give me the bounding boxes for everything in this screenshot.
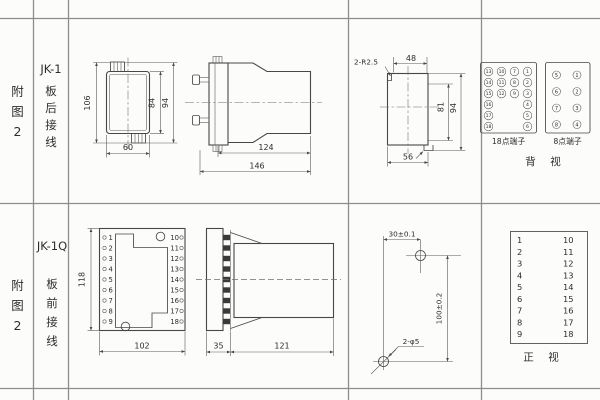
terminal-number: 7 [513, 69, 516, 75]
terminal-screw-head [193, 116, 200, 126]
back-view-caption: 背 视 [525, 155, 563, 168]
terminal-number: 6 [526, 124, 529, 130]
table-cell: 3 [517, 259, 522, 269]
dim-118: 118 [78, 229, 100, 331]
terminal-block-label: 8点端子 [553, 136, 582, 146]
table-cell: 7 [517, 306, 522, 316]
terminal-dot [103, 236, 106, 239]
table-cell: 17 [563, 317, 574, 327]
leader-line [389, 347, 399, 357]
table-grid [0, 0, 600, 400]
terminal-dot [180, 320, 183, 323]
dim-text: 146 [249, 162, 264, 171]
dim-text: 60 [123, 143, 133, 152]
dim-text: 94 [449, 103, 458, 113]
terminal-number: 15 [170, 286, 179, 294]
dim-text: 48 [406, 54, 416, 63]
terminal-number: 17 [486, 113, 492, 119]
jk1-front-view: 106 84 94 60 [83, 58, 178, 158]
dim-text: 35 [213, 342, 223, 351]
terminal-number: 2 [575, 89, 578, 95]
terminal-stud [223, 287, 230, 292]
terminal-stud [223, 266, 230, 271]
terminal-number: 15 [486, 91, 492, 97]
table-cell: 8 [517, 317, 522, 327]
model-label-jk1q: JK-1Q [36, 239, 67, 253]
terminal-number: 1 [526, 69, 529, 75]
table-cell: 10 [563, 235, 574, 245]
terminal-number: 2 [526, 80, 529, 86]
terminal-dot [180, 288, 183, 291]
dim-94-cutout: 94 [429, 74, 466, 151]
terminal-number: 8 [555, 122, 558, 128]
table-cell: 4 [517, 270, 522, 280]
radius-callout: 2-R2.5 [354, 58, 390, 77]
terminal-number: 14 [486, 80, 492, 86]
table-cell: 12 [563, 259, 574, 269]
figure-label-char: 2 [14, 318, 22, 333]
front-view-caption: 正 视 [523, 351, 561, 364]
relay-footprint-outline [116, 234, 168, 328]
terminal-number: 10 [499, 69, 505, 75]
table-cell: 18 [563, 329, 574, 339]
dim-30: 30±0.1 [384, 230, 421, 240]
terminal-stud [223, 308, 230, 313]
dim-text: 2-φ5 [403, 337, 420, 346]
terminal-stud [223, 235, 230, 240]
table-cell: 14 [563, 282, 574, 292]
mounting-hole [121, 322, 130, 331]
terminal-block-outline [546, 63, 591, 134]
terminal-number: 4 [526, 102, 529, 108]
terminal-screw-shaft [200, 78, 210, 83]
figure-label-char: 图 [11, 298, 24, 313]
table-cell: 16 [563, 306, 574, 316]
dim-124: 124 [218, 136, 311, 157]
row2-headers: 附 图 2 JK-1Q 板 前 接 线 [11, 239, 67, 348]
terminal-number: 9 [109, 318, 113, 326]
terminal-number: 5 [109, 276, 113, 284]
terminal-stud [223, 256, 230, 261]
bottom-tab [424, 145, 433, 151]
wiring-label-char: 接 [46, 315, 58, 329]
flange-stub-top [213, 57, 222, 64]
dim-text: 100±0.2 [435, 293, 444, 325]
tab-arrow [416, 152, 423, 159]
hole-callout: 2-φ5 [389, 337, 425, 357]
dim-text: 56 [403, 153, 413, 162]
terminal-stud [223, 298, 230, 303]
terminal-block-18: 13 10 7 1 14 11 8 2 15 12 9 3 16 4 17 5 … [481, 63, 537, 147]
table-cell: 9 [517, 329, 522, 339]
terminal-dot [103, 309, 106, 312]
terminal-number: 16 [486, 102, 492, 108]
jk1-side-view: 124 146 [185, 57, 322, 176]
taper-line [231, 318, 263, 329]
terminal-dot [103, 320, 106, 323]
jk1q-plate-view: 1 2 3 4 5 6 7 8 9 10 11 12 13 14 15 16 1… [78, 229, 186, 356]
terminal-number: 2 [109, 244, 113, 252]
drilling-plan: 30±0.1 100±0.2 2-φ5 [371, 230, 461, 375]
terminal-number: 1 [575, 73, 578, 79]
terminal-number: 10 [170, 234, 179, 242]
terminal-number: 5 [526, 113, 529, 119]
terminal-number: 8 [109, 307, 113, 315]
wiring-label-char: 板 [45, 84, 57, 98]
table-cell: 6 [517, 294, 522, 304]
dim-text: 94 [161, 98, 170, 108]
figure-label-char: 附 [11, 84, 24, 99]
terminal-number: 4 [109, 265, 113, 273]
terminal-number: 11 [499, 80, 505, 86]
dim-text: 124 [258, 143, 273, 152]
dim-text: 121 [274, 342, 289, 351]
dim-48: 48 [394, 54, 428, 73]
terminal-dot [103, 299, 106, 302]
terminal-screw-shaft [200, 118, 210, 123]
terminal-dot [180, 257, 183, 260]
terminal-number: 9 [513, 91, 516, 97]
terminal-number: 12 [170, 255, 179, 263]
dim-text: 118 [78, 272, 87, 287]
figure-label-char: 2 [14, 124, 22, 139]
table-cell: 2 [517, 247, 522, 257]
jk1-panel-cutout: 2-R2.5 48 81 94 56 [354, 54, 465, 167]
table-cell: 15 [563, 294, 574, 304]
model-label-jk1: JK-1 [39, 62, 61, 76]
figure-label-char: 图 [11, 104, 24, 119]
terminal-number: 12 [499, 91, 505, 97]
mounting-hole [156, 232, 165, 241]
terminal-number: 3 [109, 255, 113, 263]
terminal-dot [103, 267, 106, 270]
terminal-dot [103, 278, 106, 281]
terminal-number: 3 [526, 91, 529, 97]
dim-text: 30±0.1 [388, 230, 415, 239]
terminal-stud [223, 319, 230, 324]
dim-35: 35 [207, 332, 231, 357]
terminal-dot [180, 236, 183, 239]
page: 附 图 2 JK-1 板 后 接 线 106 84 [0, 0, 600, 400]
dim-102: 102 [100, 332, 186, 356]
terminal-stud [223, 245, 230, 250]
dim-text: 84 [148, 98, 157, 108]
wiring-label-char: 线 [46, 334, 58, 348]
front-view-table: 110 211 312 413 514 615 716 817 918 正 视 [511, 232, 588, 364]
dim-60: 60 [107, 135, 150, 158]
terminal-number: 1 [109, 234, 113, 242]
terminal-number: 6 [555, 89, 558, 95]
terminal-number: 7 [555, 106, 558, 112]
dim-text: 2-R2.5 [354, 58, 378, 67]
terminal-number: 13 [170, 265, 179, 273]
dim-text: 106 [83, 95, 92, 110]
dim-text: 81 [437, 102, 446, 112]
taper-line [231, 233, 263, 244]
terminal-screw-head [193, 75, 200, 85]
dim-146: 146 [200, 150, 311, 175]
terminal-number: 18 [170, 318, 179, 326]
wiring-label-char: 前 [46, 296, 58, 310]
table-cell: 13 [563, 270, 574, 280]
terminal-dot [180, 267, 183, 270]
wiring-label-char: 线 [45, 135, 57, 149]
terminal-number: 14 [170, 276, 179, 284]
flange-stub-bottom [213, 145, 222, 152]
table-cell: 5 [517, 282, 522, 292]
terminal-dot [103, 257, 106, 260]
terminal-block-8: 5 1 6 2 7 3 8 4 8点端子 [546, 63, 591, 147]
table-cell: 1 [517, 235, 522, 245]
terminal-number: 13 [486, 69, 492, 75]
wiring-label-char: 接 [45, 118, 57, 132]
terminal-block-label: 18点端子 [492, 136, 526, 146]
figure-label-char: 附 [11, 278, 24, 293]
terminal-dot [180, 246, 183, 249]
mounting-flange [209, 63, 228, 145]
wiring-label-char: 板 [46, 277, 58, 291]
dim-text: 102 [134, 342, 149, 351]
terminal-number: 3 [575, 106, 578, 112]
terminal-number: 5 [555, 73, 558, 79]
terminal-number: 16 [170, 297, 179, 305]
dim-100: 100±0.2 [435, 256, 448, 362]
terminal-number: 4 [575, 122, 578, 128]
row1-headers: 附 图 2 JK-1 板 后 接 线 [11, 62, 61, 149]
terminal-dot [103, 246, 106, 249]
relay-body-outline [234, 244, 334, 318]
dim-121: 121 [231, 319, 334, 357]
figure-canvas: 附 图 2 JK-1 板 后 接 线 106 84 [0, 0, 600, 400]
wiring-label-char: 后 [45, 101, 57, 115]
terminal-number: 11 [170, 244, 179, 252]
terminal-number: 6 [109, 286, 113, 294]
terminal-number: 18 [486, 124, 492, 130]
terminal-dot [180, 299, 183, 302]
terminal-dot [103, 288, 106, 291]
terminal-dot [180, 309, 183, 312]
terminal-dot [180, 278, 183, 281]
terminal-number: 7 [109, 297, 113, 305]
table-cell: 11 [563, 247, 574, 257]
terminal-number: 17 [170, 307, 179, 315]
jk1q-side-view: 35 121 [196, 229, 341, 357]
terminal-number: 8 [513, 80, 516, 86]
